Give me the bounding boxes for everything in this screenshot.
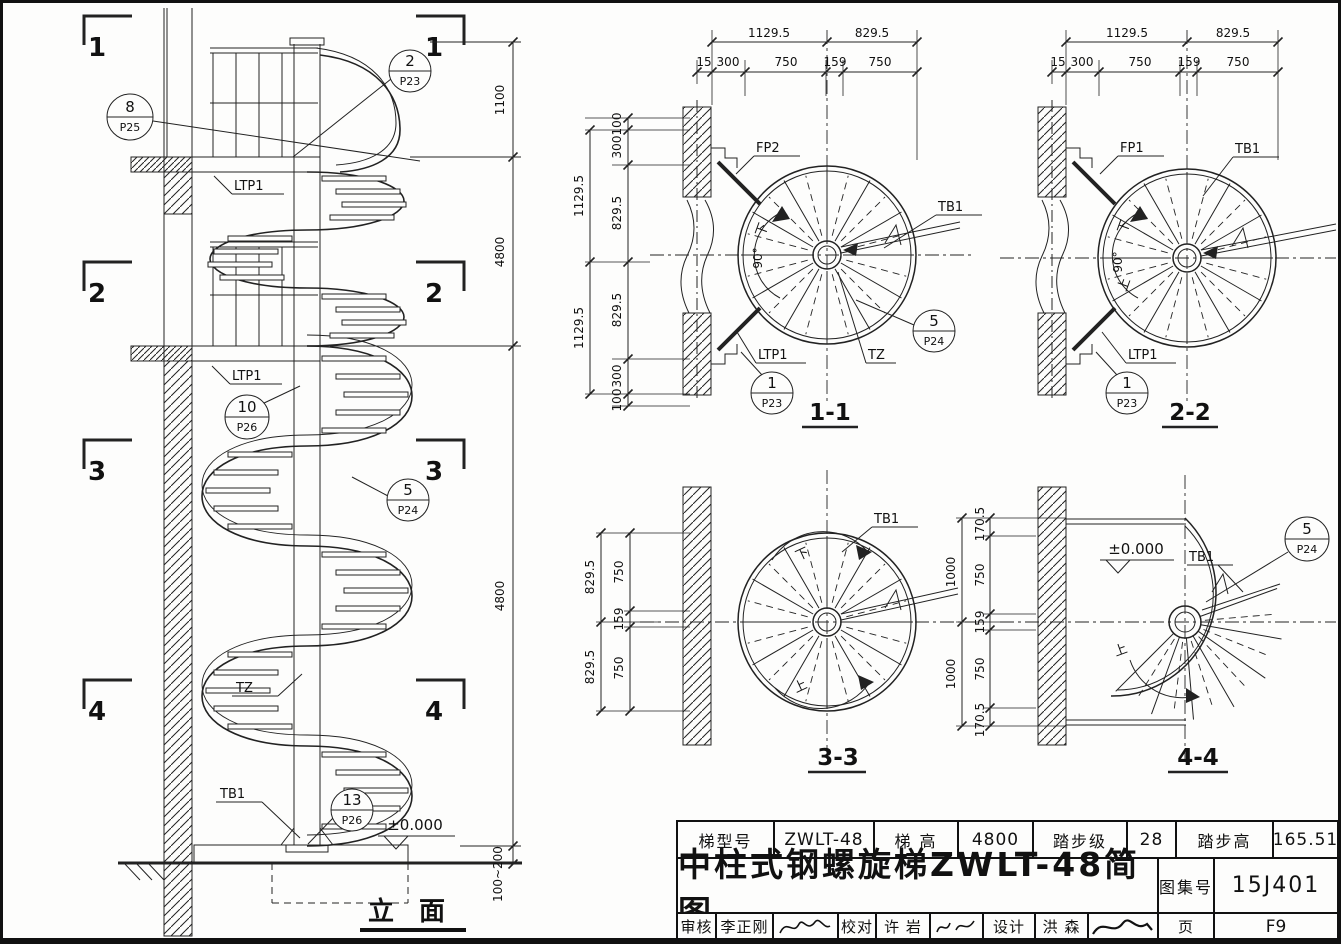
label-ltp1-top: LTP1 [234,179,264,194]
atlas-number: 15J401 [1213,857,1339,914]
s33-dim: 159 [612,608,626,631]
section-mark-4-left: 4 [88,697,114,727]
s11-label-tb1: TB1 [937,200,963,215]
s11-dim: 750 [775,55,798,69]
s11-top-dims [693,30,922,160]
elevation-wall [131,8,192,936]
s11-dim: 300 [610,136,624,159]
elevation-railings [210,48,318,346]
s22-dim: 750 [1129,55,1152,69]
section-1-1: 1129.5 829.5 15 300 750 159 750 1129.5 1… [572,26,982,427]
dim-ground-range: 100~200 [491,846,505,902]
callout-5-P24: 5 P24 [913,310,955,352]
stamp-name-proof: 许 岩 [875,912,931,941]
section-mark-2-right: 2 [425,279,451,309]
svg-text:1: 1 [767,374,777,392]
label-tb1: TB1 [219,787,245,802]
stamp-name-check: 李正刚 [715,912,774,941]
section-mark-3-left: 3 [88,457,114,487]
s11-dim: 750 [869,55,892,69]
s11-dim: 300 [717,55,740,69]
callout-5-P24: 5 P24 [387,479,429,521]
section-3-3: 829.5 829.5 750 159 750 TB1 下 上 3-3 [583,470,975,772]
s11-dim: 100 [610,113,624,136]
spec-label-rise: 踏步高 [1175,820,1274,859]
section-mark-1-left: 1 [88,33,114,63]
s44-label-up: 上 [1112,641,1129,660]
s11-title: 1-1 [809,400,851,426]
svg-text:2: 2 [405,52,415,70]
section-mark-3-right: 3 [425,457,451,487]
s33-label-tb1: TB1 [873,512,899,527]
s11-label-ltp1: LTP1 [758,348,788,363]
s11-label-fp2: FP2 [756,141,780,156]
stamp-signature-check [772,912,839,941]
section-2-2: 1129.5 829.5 15 300 750 159 750 FP1 TB1 … [1000,26,1336,427]
svg-text:13: 13 [342,791,361,809]
s22-top-dims [1048,30,1283,160]
s22-label-tb1: TB1 [1234,142,1260,157]
stamp-name-design: 洪 森 [1034,912,1089,941]
signature-scribble [1089,914,1155,940]
callout-1-P23: 1 P23 [751,372,793,414]
s44-callouts: 5 P24 [1206,517,1329,602]
stamp-signature-proof [929,912,984,941]
stamp-label-proof: 校对 [837,912,877,941]
s22-dim: 159 [1178,55,1201,69]
svg-text:P23: P23 [762,397,783,410]
spec-value-rise: 165.51 [1272,820,1339,859]
s22-label-fp1: FP1 [1120,141,1144,156]
page-label: 页 [1157,912,1215,941]
stamp-signature-design [1087,912,1159,941]
drawing-title: 中柱式钢螺旋梯ZWLT-48简图 [676,857,1159,914]
label-tz: TZ [235,681,253,696]
s44-dim: 170.5 [973,507,987,541]
s44-dim: 750 [973,564,987,587]
dim-rail-height: 1100 [493,85,507,116]
callout-13-P26: 13 P26 [331,789,373,831]
s44-dim: 1000 [944,659,958,690]
elevation-dim-chain [330,38,521,869]
s22-label-up: 上 [1115,276,1134,293]
s11-dim: 829.5 [855,26,889,40]
atlas-label: 图集号 [1157,857,1215,914]
s11-dim: 1129.5 [748,26,790,40]
drawing-canvas: 1 1 2 2 3 3 4 4 1100 4800 4800 100~200 8… [0,0,1341,944]
s11-dim: 1129.5 [572,175,586,217]
s44-dim: 170.5 [973,703,987,737]
s22-title: 2-2 [1169,400,1211,426]
section-4-4: 1000 1000 170.5 750 159 750 170.5 ±0.000… [944,475,1336,772]
dim-floor-upper: 4800 [493,237,507,268]
s11-dim: 15 [696,55,711,69]
s11-dim: 100 [610,389,624,412]
s11-dim: 1129.5 [572,307,586,349]
s22-dim: 829.5 [1216,26,1250,40]
section-mark-4-right: 4 [425,697,451,727]
svg-text:P26: P26 [342,814,363,827]
s44-title: 4-4 [1177,745,1219,771]
s22-label-angle: 90° [1111,251,1125,272]
s33-label-leaders [808,527,918,772]
s44-label-tb1: TB1 [1188,550,1214,565]
callout-5-P24: 5 P24 [1285,517,1329,561]
s33-dim: 750 [612,561,626,584]
s33-wall [683,487,711,745]
svg-text:P25: P25 [120,121,141,134]
callout-1-P23: 1 P23 [1106,372,1148,414]
label-ltp1-mid: LTP1 [232,369,262,384]
svg-text:P23: P23 [400,75,421,88]
dim-floor-lower: 4800 [493,581,507,612]
callout-10-P26: 10 P26 [225,395,269,439]
svg-text:5: 5 [929,312,939,330]
stamp-label-check: 审核 [676,912,717,941]
s44-dim: 1000 [944,557,958,588]
s22-dim: 1129.5 [1106,26,1148,40]
stamp-label-design: 设计 [982,912,1036,941]
svg-text:P24: P24 [1297,543,1318,556]
s22-dim: 300 [1071,55,1094,69]
svg-text:P26: P26 [237,421,258,434]
s44-label-leaders [1100,560,1243,772]
s44-label-level: ±0.000 [1108,540,1164,558]
section-mark-1-right: 1 [425,33,451,63]
s44-wall [1038,487,1066,745]
s11-dim: 159 [824,55,847,69]
s22-entry-plates [1066,148,1115,364]
drawing-sheet: 1 1 2 2 3 3 4 4 1100 4800 4800 100~200 8… [0,0,1341,944]
signature-scribble [931,914,979,940]
svg-text:P23: P23 [1117,397,1138,410]
svg-text:5: 5 [403,481,413,499]
section-mark-2-left: 2 [88,279,114,309]
s11-wall [681,100,714,400]
signature-scribble [774,914,834,940]
s22-wall [1036,100,1069,400]
s33-dim: 829.5 [583,650,597,684]
elevation-title: 立 面 [368,896,453,927]
s22-label-ltp1: LTP1 [1128,348,1158,363]
svg-text:10: 10 [237,398,256,416]
s11-label-angle: 90° [751,247,765,268]
s11-left-dims [585,114,690,411]
s33-label-down: 下 [793,545,811,564]
s33-title: 3-3 [817,745,859,771]
svg-text:5: 5 [1302,520,1312,538]
s11-label-tz: TZ [867,348,885,363]
label-level-zero: ±0.000 [387,816,443,834]
callout-2-P23: 2 P23 [389,50,431,92]
svg-text:8: 8 [125,98,135,116]
s22-dim: 750 [1227,55,1250,69]
callout-8-P25: 8 P25 [107,94,153,140]
s11-dim: 300 [610,365,624,388]
svg-text:P24: P24 [924,335,945,348]
s11-dim: 829.5 [610,196,624,230]
s33-dim: 750 [612,657,626,680]
s33-dim: 829.5 [583,560,597,594]
s44-dim: 159 [973,611,987,634]
s44-dim: 750 [973,658,987,681]
sheet-bottom-bar [0,938,1341,944]
s11-dim: 829.5 [610,293,624,327]
svg-text:P24: P24 [398,504,419,517]
s22-dim: 15 [1050,55,1065,69]
s33-label-up: 上 [791,677,809,696]
svg-text:1: 1 [1122,374,1132,392]
page-number: F9 [1213,912,1339,941]
elevation-view: 1 1 2 2 3 3 4 4 1100 4800 4800 100~200 8… [84,8,522,936]
